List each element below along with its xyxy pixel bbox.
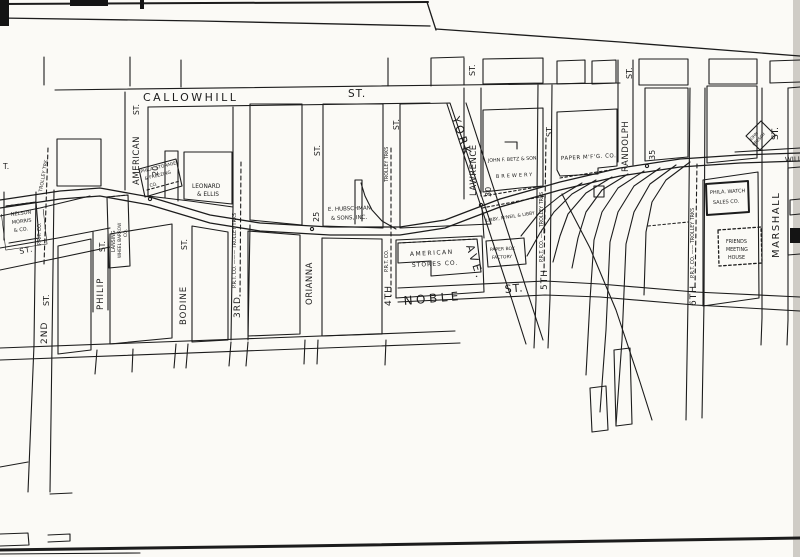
bottom-border (0, 538, 800, 550)
trolley-label-2nd-prt: P.R.T. CO. (37, 223, 43, 245)
building-label-phila-watch-1: PHILA. WATCH (710, 188, 746, 196)
street-label-marshall: MARSHALL (771, 192, 782, 258)
rail-marker-25: 25 (312, 212, 321, 222)
building-label-lansing-3: CO. (123, 229, 129, 237)
building-label-phila-watch-2: SALES CO. (713, 199, 740, 206)
street-label-philip-st: ST. (98, 241, 107, 252)
building-betz-brewery (483, 108, 543, 192)
building-paper-mfg (557, 109, 617, 176)
lower-street-grid (0, 281, 800, 546)
scan-mark (0, 0, 9, 26)
street-line-north-of-rail (735, 148, 800, 152)
building-label-nelson-morris-3: & CO. (14, 226, 29, 234)
street-label-lawrence: LAWRENCE (469, 144, 479, 196)
building-label-betz-1: JOHN F. BETZ & SON (487, 155, 537, 164)
street-label-3rd: 3RD (233, 296, 243, 318)
trolley-label-5th: P.R.T. CO. —— TROLLEY TRKS (539, 192, 545, 262)
blocks-north-of-callowhill (44, 57, 800, 90)
building-label-hubschman-1: E. HUBSCHMAN (328, 206, 371, 213)
yard-structure (590, 386, 608, 432)
building-label-hubschman-2: & SONS, INC. (331, 215, 368, 222)
trolley-label-2nd-trk: TROLLEY TRK (38, 159, 50, 194)
street-label-callowhill: CALLOWHILL (143, 91, 238, 104)
map-canvas: CALLOWHILL ST. NOBLE ST. WILLOW T. ST. Y… (0, 0, 800, 557)
street-label-orianna: ORIANNA (305, 262, 315, 305)
trolley-label-4th-prt: P.R.T. CO. (384, 250, 390, 272)
scan-edge-right (793, 0, 800, 557)
scan-mark (140, 0, 144, 9)
street-label-2nd: 2ND (40, 322, 50, 344)
street-label-american: AMERICAN (132, 136, 142, 185)
map-borders (0, 0, 800, 554)
trolley-label-6th: P.R.T. CO. —— TROLLEY TRKS (690, 208, 696, 278)
street-label-philip: PHILIP (96, 278, 106, 310)
street-label-callowhill-st: ST. (348, 88, 366, 100)
building-label-paper-box-2: FACTORY (492, 254, 513, 261)
rail-marker-tick (645, 164, 648, 167)
street-label-diag-st: ST. (19, 244, 34, 255)
street-label-4th: 4TH (384, 285, 394, 306)
building-label-leonard-2: & ELLIS (197, 192, 219, 198)
street-label-randolph-st: ST. (625, 67, 634, 79)
street-label-6th: 6TH (689, 285, 699, 306)
building-label-libby: LIBBY, M'NEIL & LIBBY (485, 210, 535, 224)
city-block (57, 139, 101, 186)
street-label-4th-st: ST. (392, 119, 401, 130)
trolley-3rd (240, 162, 241, 296)
city-block (248, 231, 300, 336)
street-label-lawrence-st: ST. (468, 64, 477, 76)
street-label-noble: NOBLE (403, 289, 462, 308)
building-label-lansing-2: WHEEL BARROW (117, 223, 122, 258)
building-label-friends-1: FRIENDS (726, 239, 747, 245)
street-label-marshall-st: ST. (771, 127, 781, 140)
building-label-nelson-morris-2: MORRIS (12, 218, 32, 226)
building-label-leonard-1: LEONARD (192, 184, 221, 190)
street-label-randolph: RANDOLPH (621, 121, 631, 172)
street-label-5th-st: ST. (545, 125, 554, 137)
rail-marker-tick (310, 227, 313, 230)
city-block (250, 104, 302, 225)
street-label-bodine-st: ST. (180, 239, 189, 250)
building-phila-watch (706, 181, 749, 215)
building-label-friends-2: MEETING (726, 247, 748, 253)
rail-marker-30: 30 (484, 187, 493, 197)
building-label-american-stores-1: AMERICAN (410, 249, 454, 258)
street-label-5th: 5TH (540, 269, 550, 290)
building-label-betz-2: BREWERY (496, 172, 535, 180)
street-label-edge-fragment: T. (2, 162, 9, 171)
building-label-paper-mfg: PAPER M'F'G. CO. (561, 153, 617, 162)
scanned-map-page: CALLOWHILL ST. NOBLE ST. WILLOW T. ST. Y… (0, 0, 800, 557)
york-ave-east-line (466, 103, 543, 340)
building-label-friends-3: HOUSE (728, 255, 745, 261)
city-block (58, 239, 91, 354)
street-label-noble-st: ST. (504, 281, 524, 296)
rail-marker-tick (148, 197, 151, 200)
street-label-american-st: ST. (132, 104, 141, 115)
building-label-nelson-morris-1: NELSON (11, 209, 32, 217)
city-block (322, 238, 382, 336)
trolley-label-4th-trks: TROLLEY TRKS (384, 147, 390, 183)
street-label-orianna-st: ST. (313, 145, 322, 156)
blocks-mid (57, 60, 800, 420)
street-label-bodine: BODINE (179, 286, 189, 325)
scan-mark (70, 0, 108, 6)
right-edge-black-bar (790, 228, 800, 243)
trolley-label-3rd: P.R.T. CO. ——— TROLLEY TRKS (232, 213, 238, 288)
city-block (192, 226, 228, 342)
street-label-2nd-st: ST. (42, 294, 51, 306)
rail-marker-35: 35 (648, 150, 657, 160)
building-label-paper-box-1: PAPER BOX (490, 246, 515, 253)
building-label-american-stores-2: STORES CO. (412, 260, 459, 269)
street-label-willow-fragment: WILLOW (785, 155, 800, 164)
callowhill-north-edge (55, 83, 620, 90)
